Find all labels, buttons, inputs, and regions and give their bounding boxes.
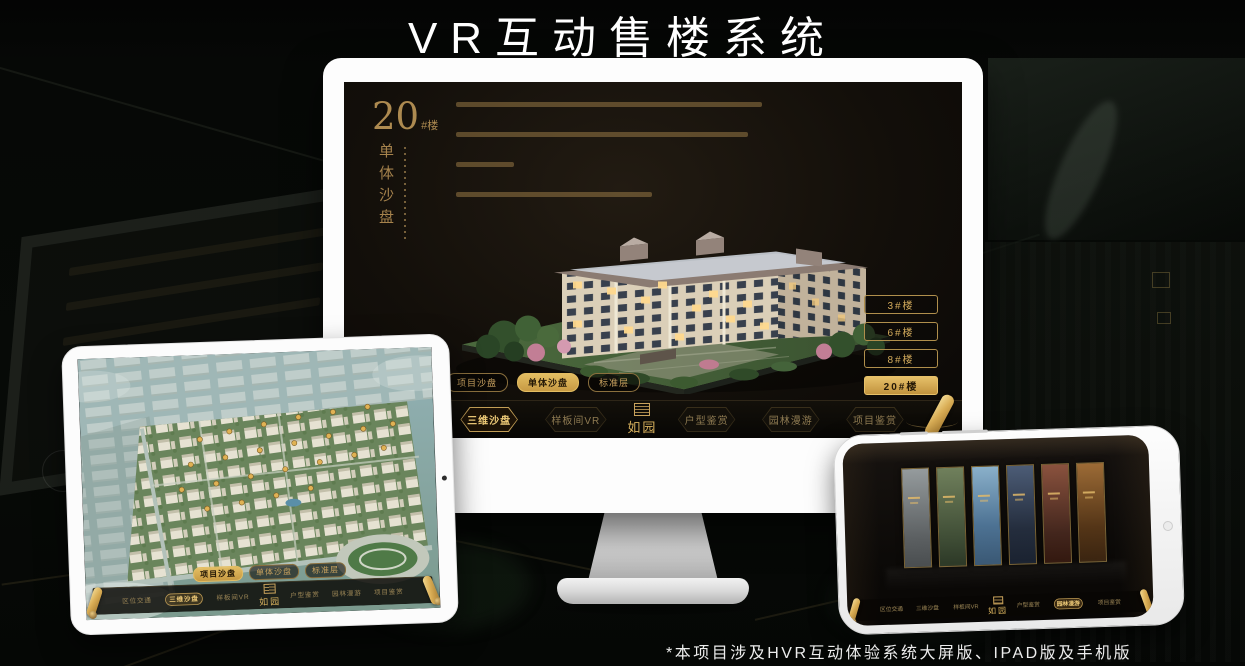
tablet-tab-single-sandtable[interactable]: 单体沙盘 [249, 564, 299, 581]
phone-screen: 区位交通 三维沙盘 样板间VR 如园 户型鉴赏 园林漫游 项目鉴赏 [842, 435, 1154, 627]
building-heading: 20#楼 单体沙盘 [372, 98, 438, 239]
nav-item-3d-sandtable[interactable]: 三维沙盘 [454, 407, 524, 432]
tablet-brand-logo: 如园 [259, 583, 282, 608]
nav-item-floorplans[interactable]: 户型鉴赏 [672, 407, 742, 432]
tablet-nav-item-garden-roam[interactable]: 园林漫游 [332, 588, 362, 598]
brand-seal-icon [634, 403, 650, 416]
page-title: VR互动售楼系统 [0, 2, 1245, 66]
gallery-panel-building-day[interactable] [971, 465, 1002, 566]
tablet-nav-item-3d-sandtable[interactable]: 三维沙盘 [165, 592, 203, 606]
building-number: 20 [372, 95, 419, 138]
footnote: *本项目涉及HVR互动体验系统大屏版、IPAD版及手机版 [666, 639, 1132, 663]
gallery-panel-autumn[interactable] [1041, 463, 1072, 564]
tab-project-sandtable[interactable]: 项目沙盘 [446, 373, 508, 392]
gallery-panel-courtyard[interactable] [936, 466, 967, 567]
phone-power-button [942, 430, 988, 434]
phone-device: 区位交通 三维沙盘 样板间VR 如园 户型鉴赏 园林漫游 项目鉴赏 [833, 425, 1185, 636]
bg-gold-mark [1157, 312, 1171, 324]
monitor-stand-base [557, 578, 749, 604]
building-model-image [444, 184, 904, 394]
bg-gold-mark [1152, 272, 1170, 288]
floor-button-20[interactable]: 20#楼 [864, 376, 938, 395]
phone-camera-icon [1163, 521, 1173, 531]
tablet-nav-item-location[interactable]: 区位交通 [122, 595, 152, 605]
poster-canvas: VR互动售楼系统 20#楼 单体沙盘 [0, 0, 1245, 666]
phone-brand-logo: 如园 [988, 596, 1009, 617]
phone-nav-item-3d-sandtable[interactable]: 三维沙盘 [916, 604, 939, 613]
nav-item-model-room-vr[interactable]: 样板间VR [538, 407, 613, 432]
building-number-suffix: #楼 [421, 120, 438, 132]
floor-button-3[interactable]: 3#楼 [864, 295, 938, 314]
bg-aerial-photo [988, 58, 1245, 240]
phone-volume-button [900, 431, 928, 435]
gallery-panel-building-dusk[interactable] [1006, 464, 1037, 565]
brand-seal-icon [264, 584, 276, 594]
interior-ceiling-shade [842, 435, 1148, 465]
nav-item-garden-roam[interactable]: 园林漫游 [756, 407, 826, 432]
phone-nav-item-floorplans[interactable]: 户型鉴赏 [1017, 601, 1040, 610]
phone-nav-item-location[interactable]: 区位交通 [880, 605, 903, 614]
view-tab-group: 项目沙盘 单体沙盘 标准层 [446, 373, 640, 392]
tab-standard-floor[interactable]: 标准层 [588, 373, 640, 392]
vertical-english-caption [404, 147, 406, 239]
tablet-nav-item-floorplans[interactable]: 户型鉴赏 [290, 589, 320, 599]
vr-gallery-panels [901, 462, 1107, 568]
phone-bottom-nav: 区位交通 三维沙盘 样板间VR 如园 户型鉴赏 园林漫游 项目鉴赏 [853, 591, 1148, 621]
brand-seal-icon [993, 596, 1003, 604]
floor-button-6[interactable]: 6#楼 [864, 322, 938, 341]
phone-nav-item-garden-roam[interactable]: 园林漫游 [1054, 598, 1083, 610]
phone-nav-item-model-room-vr[interactable]: 样板间VR [953, 603, 979, 612]
floor-button-group: 3#楼 6#楼 8#楼 20#楼 [864, 295, 938, 395]
bg-river-shape [1031, 93, 1130, 247]
monitor-stand-neck [588, 511, 718, 581]
brand-logo: 如园 [627, 403, 657, 436]
phone-nav-item-project-gallery[interactable]: 项目鉴赏 [1098, 598, 1121, 607]
tablet-nav-item-model-room-vr[interactable]: 样板间VR [216, 592, 249, 602]
gallery-panel-interior[interactable] [1076, 462, 1107, 563]
tablet-tab-standard-floor[interactable]: 标准层 [305, 562, 346, 578]
building-subtitle-vertical: 单体沙盘 [376, 143, 397, 239]
tablet-device: 项目沙盘 单体沙盘 标准层 区位交通 三维沙盘 样板间VR 如园 户型鉴赏 园林… [61, 333, 459, 635]
tablet-nav-item-project-gallery[interactable]: 项目鉴赏 [374, 587, 404, 597]
tablet-screen: 项目沙盘 单体沙盘 标准层 区位交通 三维沙盘 样板间VR 如园 户型鉴赏 园林… [78, 347, 441, 620]
floor-button-8[interactable]: 8#楼 [864, 349, 938, 368]
tab-single-sandtable[interactable]: 单体沙盘 [517, 373, 579, 392]
gallery-panel-ink-painting[interactable] [901, 467, 932, 568]
tablet-tab-project-sandtable[interactable]: 项目沙盘 [193, 566, 243, 583]
nav-item-project-gallery[interactable]: 项目鉴赏 [840, 407, 910, 432]
tablet-camera-icon [442, 475, 447, 480]
